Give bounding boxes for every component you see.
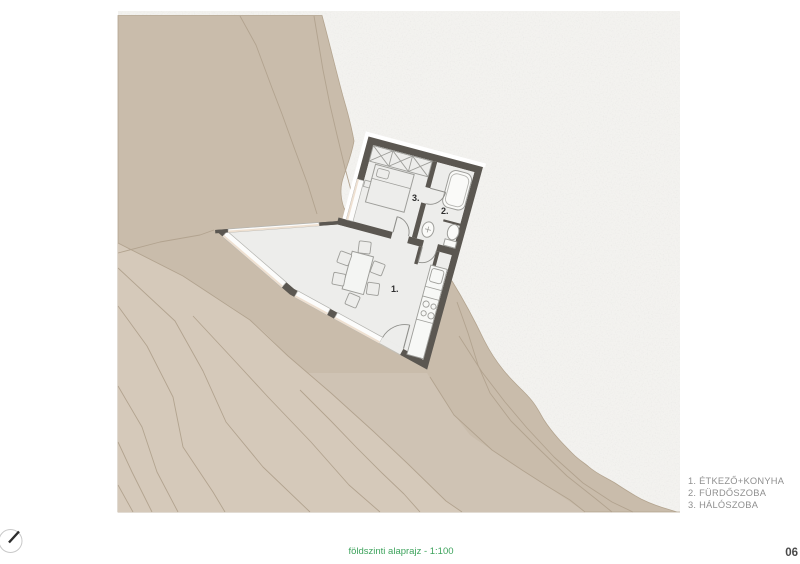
svg-text:3.: 3.	[412, 193, 420, 203]
svg-text:2.: 2.	[441, 206, 449, 216]
svg-text:3. HÁLÓSZOBA: 3. HÁLÓSZOBA	[688, 500, 759, 510]
svg-text:földszinti alaprajz - 1:100: földszinti alaprajz - 1:100	[348, 546, 453, 557]
svg-text:06: 06	[785, 547, 798, 559]
svg-text:2. FÜRDŐSZOBA: 2. FÜRDŐSZOBA	[688, 488, 767, 498]
svg-text:1. ÉTKEZŐ+KONYHA: 1. ÉTKEZŐ+KONYHA	[688, 476, 785, 486]
svg-text:1.: 1.	[391, 284, 399, 294]
